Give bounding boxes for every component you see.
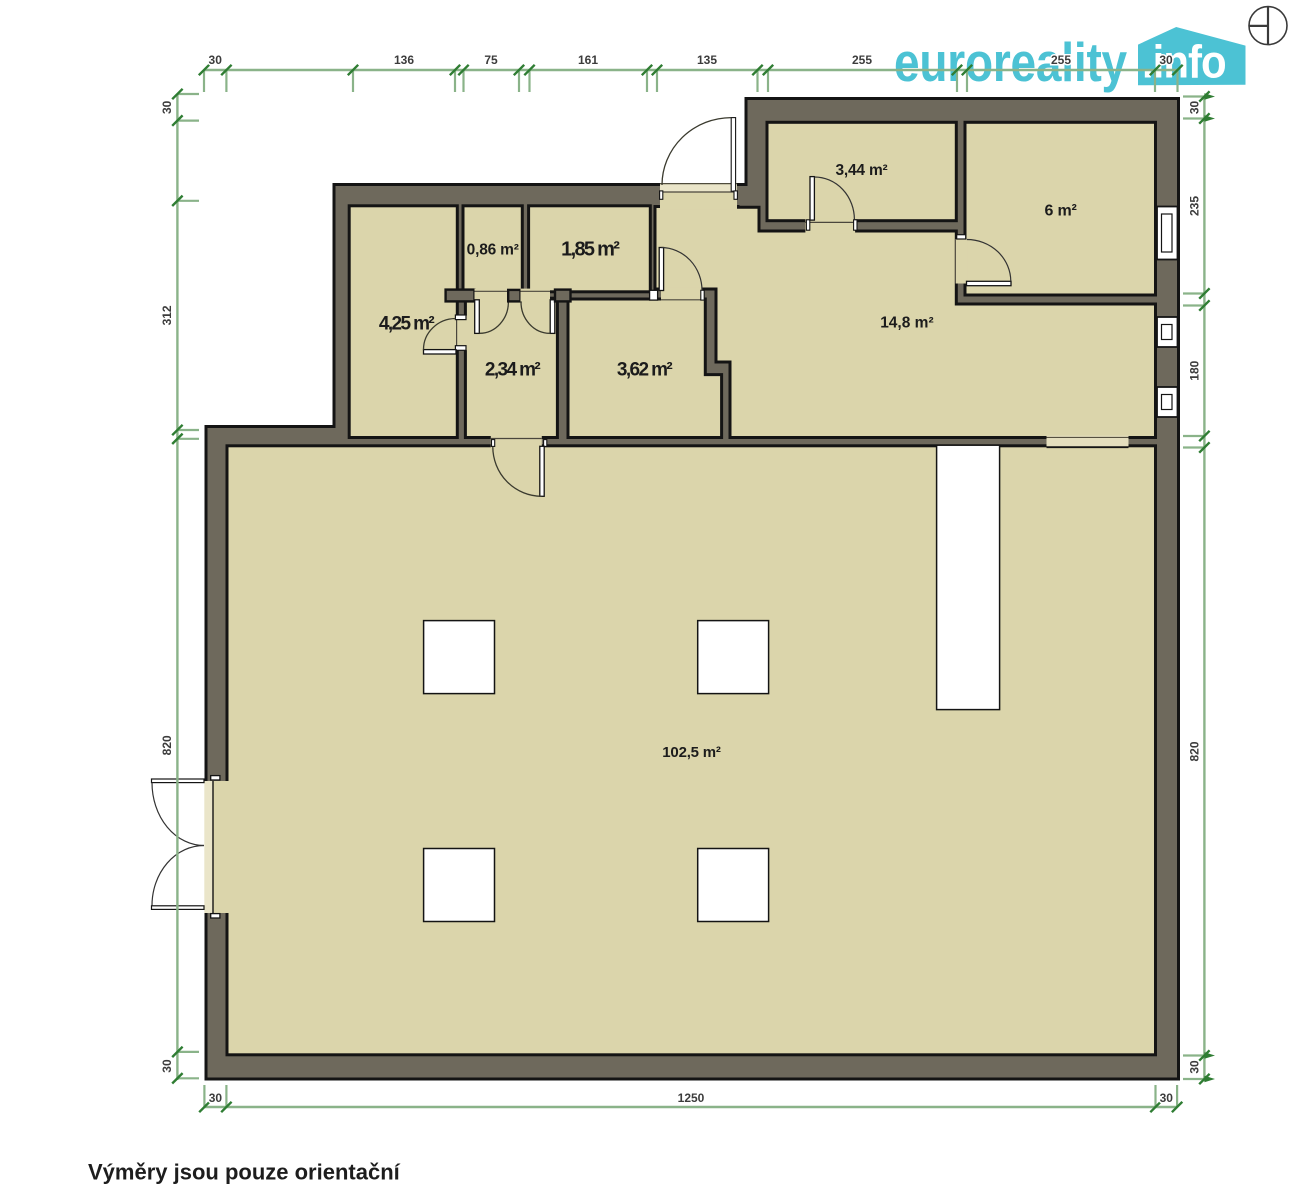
svg-text:30: 30: [160, 100, 174, 114]
svg-text:30: 30: [209, 53, 223, 67]
svg-text:255: 255: [852, 53, 872, 67]
svg-text:75: 75: [484, 53, 498, 67]
svg-text:255: 255: [1051, 53, 1071, 67]
svg-text:3,44 m²: 3,44 m²: [835, 162, 887, 179]
svg-text:102,5 m²: 102,5 m²: [662, 744, 721, 761]
svg-text:820: 820: [1187, 741, 1201, 761]
svg-text:161: 161: [578, 53, 598, 67]
svg-text:3,62 m²: 3,62 m²: [617, 360, 673, 381]
svg-text:1,85 m²: 1,85 m²: [561, 239, 620, 261]
svg-text:30: 30: [160, 1059, 174, 1073]
svg-text:180: 180: [1187, 360, 1201, 380]
svg-text:820: 820: [160, 735, 174, 755]
svg-text:0,86 m²: 0,86 m²: [467, 241, 519, 258]
svg-text:Výměry jsou pouze orientační: Výměry jsou pouze orientační: [88, 1160, 401, 1185]
svg-text:6 m²: 6 m²: [1045, 203, 1077, 220]
svg-text:14,8 m²: 14,8 m²: [880, 315, 933, 332]
svg-text:1250: 1250: [678, 1091, 705, 1105]
svg-text:4,25 m²: 4,25 m²: [379, 314, 435, 335]
svg-text:135: 135: [697, 53, 717, 67]
svg-text:235: 235: [1187, 196, 1201, 216]
svg-text:30: 30: [1187, 1060, 1201, 1074]
svg-text:30: 30: [1187, 101, 1201, 115]
svg-text:2,34 m²: 2,34 m²: [485, 360, 541, 381]
svg-text:euroreality: euroreality: [894, 31, 1127, 92]
svg-text:30: 30: [1159, 53, 1173, 67]
svg-text:136: 136: [394, 53, 414, 67]
svg-text:312: 312: [160, 305, 174, 325]
svg-text:30: 30: [209, 1091, 223, 1105]
svg-text:30: 30: [1160, 1091, 1174, 1105]
